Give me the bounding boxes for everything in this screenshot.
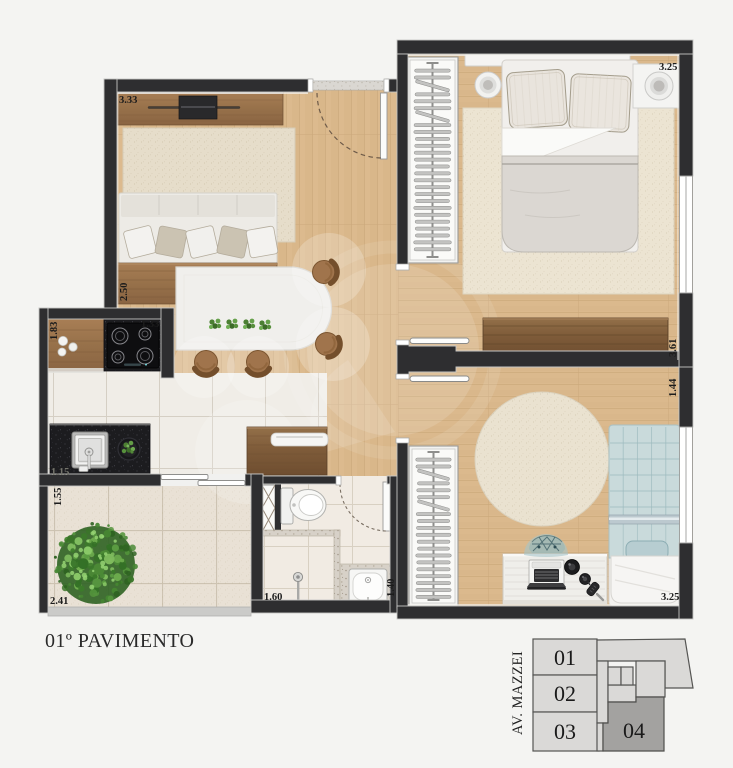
svg-text:01: 01	[554, 645, 576, 670]
svg-text:1.44: 1.44	[668, 378, 679, 397]
svg-text:3.61: 3.61	[668, 339, 679, 357]
svg-text:3.33: 3.33	[119, 95, 137, 106]
svg-text:AV. MAZZEI: AV. MAZZEI	[510, 651, 526, 735]
svg-text:03: 03	[554, 719, 576, 744]
svg-text:02: 02	[554, 681, 576, 706]
svg-text:2.50: 2.50	[119, 283, 130, 301]
svg-text:3.25: 3.25	[659, 62, 677, 73]
svg-text:1.15: 1.15	[51, 467, 69, 478]
svg-text:2.41: 2.41	[50, 596, 68, 607]
svg-text:1.40: 1.40	[386, 579, 397, 597]
svg-text:04: 04	[623, 718, 645, 743]
svg-text:1.33: 1.33	[141, 319, 159, 330]
svg-text:3.25: 3.25	[661, 592, 679, 603]
svg-text:1.60: 1.60	[264, 592, 282, 603]
svg-text:01º PAVIMENTO: 01º PAVIMENTO	[45, 630, 194, 652]
svg-text:1.83: 1.83	[49, 322, 60, 340]
svg-text:1.55: 1.55	[53, 488, 64, 506]
